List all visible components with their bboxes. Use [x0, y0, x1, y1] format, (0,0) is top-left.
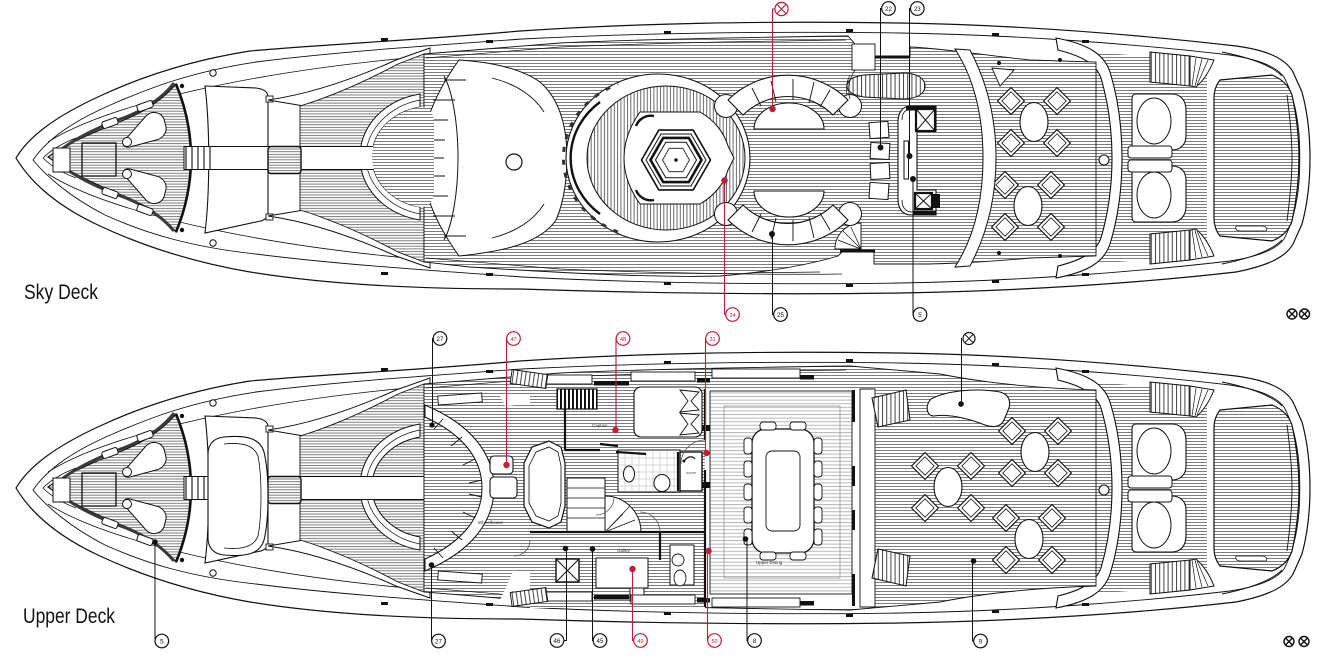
- svg-text:31: 31: [709, 337, 715, 343]
- svg-text:8: 8: [753, 638, 757, 645]
- svg-text:Upper Deck: Upper Deck: [23, 605, 115, 628]
- svg-text:45: 45: [597, 638, 604, 645]
- svg-text:Upper Dining: Upper Dining: [756, 560, 783, 565]
- svg-text:22: 22: [885, 6, 892, 13]
- svg-text:Wheelhouse: Wheelhouse: [478, 520, 504, 525]
- svg-text:5: 5: [918, 312, 922, 319]
- svg-text:Galley: Galley: [617, 548, 631, 553]
- svg-text:23: 23: [914, 6, 921, 13]
- svg-text:47: 47: [510, 337, 516, 343]
- svg-text:24: 24: [729, 313, 735, 319]
- svg-text:Captain: Captain: [592, 423, 608, 428]
- svg-text:25: 25: [777, 312, 784, 319]
- svg-text:27: 27: [435, 638, 442, 645]
- svg-text:50: 50: [711, 639, 717, 645]
- svg-text:27: 27: [437, 336, 444, 343]
- svg-text:5: 5: [160, 638, 164, 645]
- svg-text:46: 46: [554, 638, 561, 645]
- svg-text:48: 48: [620, 337, 626, 343]
- svg-text:9: 9: [979, 638, 983, 645]
- svg-text:49: 49: [637, 639, 643, 645]
- svg-text:Sky Deck: Sky Deck: [24, 281, 98, 304]
- svg-text:shower: shower: [686, 471, 697, 475]
